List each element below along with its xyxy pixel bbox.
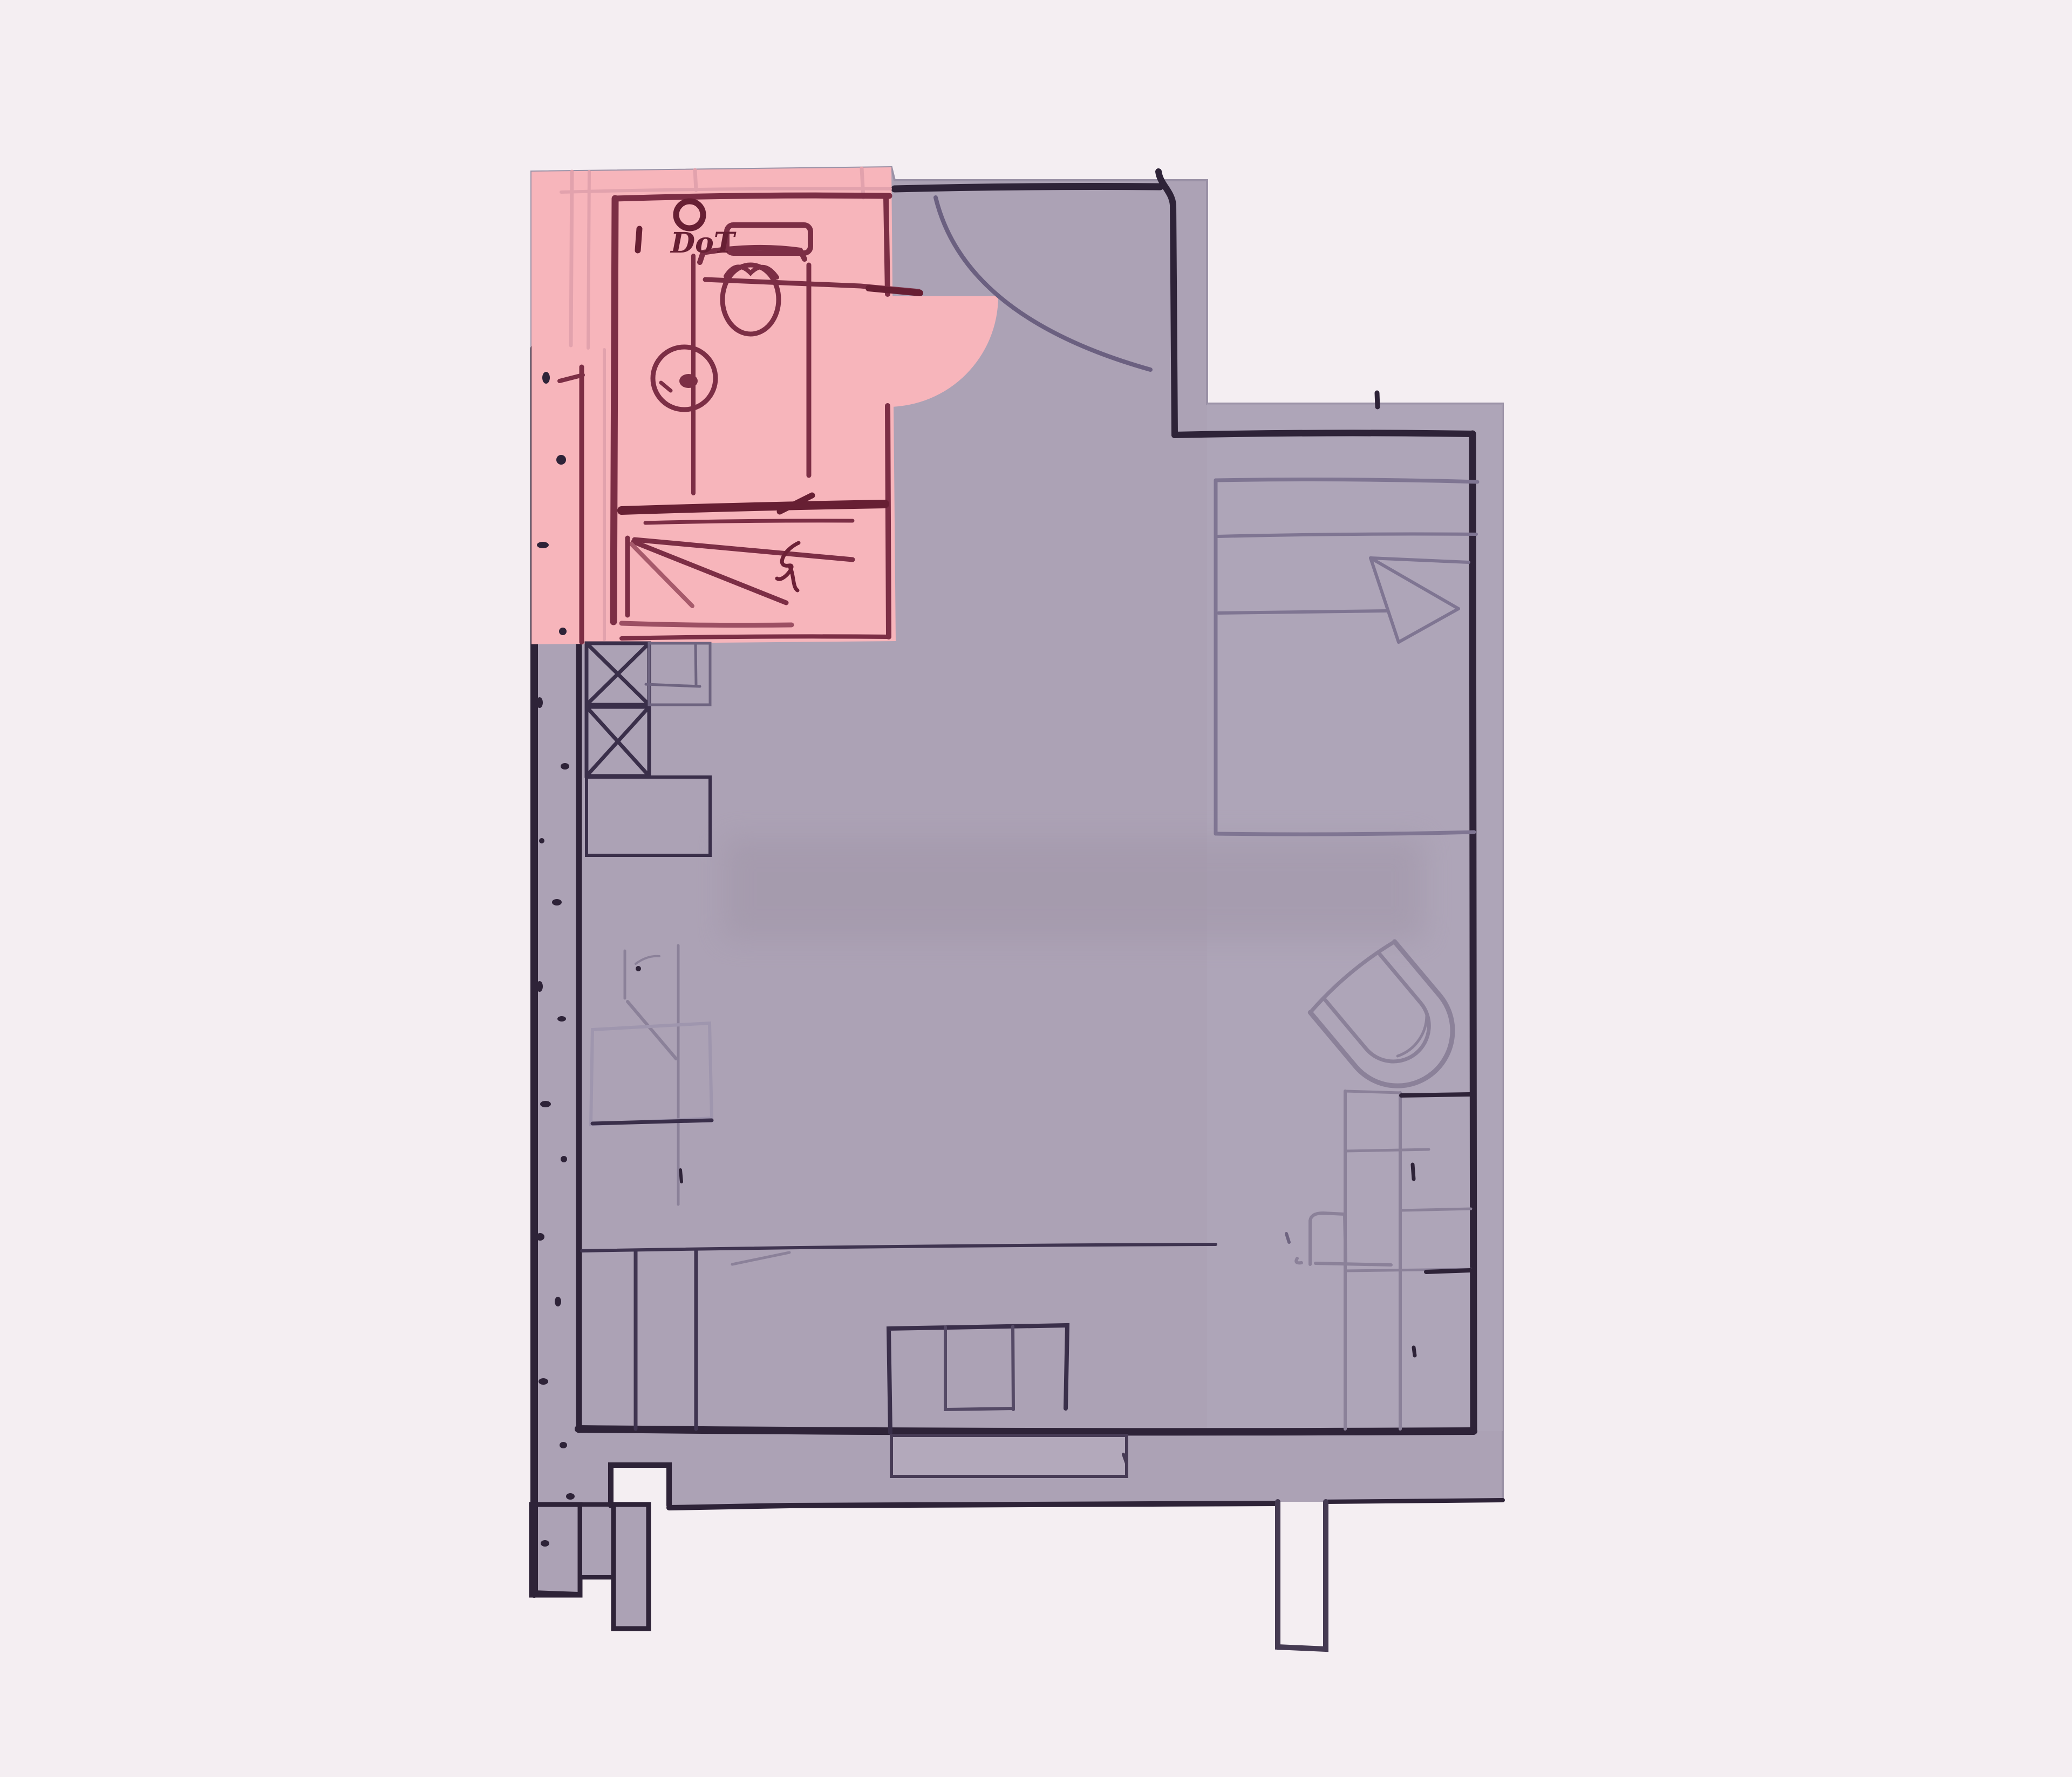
wardrobe-h3-dark: [1426, 1270, 1471, 1272]
bottom-wall-slot: [611, 1465, 669, 1506]
floor-smudge: [723, 838, 1424, 940]
bed-mid-line: [1218, 611, 1387, 613]
bathroom-top-wall-line: [615, 195, 889, 199]
bottom-right-edge-line: [1326, 1500, 1503, 1502]
floor-plan-page: DoT: [0, 0, 2072, 1777]
chimney-stub: [1278, 1502, 1326, 1649]
wing-top-tick: [1377, 393, 1378, 407]
shower-bottom-line: [622, 623, 792, 625]
bathroom-label: DoT: [670, 227, 737, 260]
wing-top-inner-line: [1175, 433, 1473, 435]
left-wall-foot-bridge: [580, 1504, 614, 1577]
floor-plan-svg: DoT: [0, 0, 2072, 1777]
pink-seam-1: [571, 172, 572, 345]
bed-bottom-edge: [1217, 832, 1474, 834]
right-wall-inner-line: [1473, 434, 1474, 1431]
top-wall-inner-line: [895, 187, 1160, 189]
wardrobe-h2: [1400, 1209, 1471, 1210]
terrace-step: [891, 1435, 1127, 1476]
sketch-dot: [636, 966, 641, 971]
pink-seam-4: [695, 170, 696, 190]
bottom-wall-inner-line: [578, 1429, 1474, 1432]
left-wall-foot-column: [614, 1504, 649, 1629]
wardrobe-tick-2: [1414, 1347, 1415, 1356]
wardrobe-top-dark: [1401, 1094, 1470, 1095]
bathroom-left-wall-line: [614, 199, 615, 622]
label-tick: [638, 229, 639, 250]
cabinet-box-vline: [696, 643, 696, 685]
wardrobe-h1: [1345, 1149, 1429, 1151]
sketch-tick: [680, 1170, 681, 1182]
bathroom-right-wall-upper: [886, 198, 888, 294]
wardrobe-top-edge: [1345, 1091, 1400, 1093]
left-wall-foot-bottom: [534, 1593, 578, 1595]
pink-seam-2: [588, 172, 589, 348]
washbasin-drain: [679, 374, 698, 388]
left-wall-foot-strip: [531, 1504, 580, 1595]
wardrobe-tick-1: [1413, 1165, 1414, 1179]
bottom-outer-edge-line: [669, 1503, 1278, 1508]
bathroom-bottom-line: [622, 636, 889, 638]
bathroom-right-wall-lower: [888, 406, 889, 637]
